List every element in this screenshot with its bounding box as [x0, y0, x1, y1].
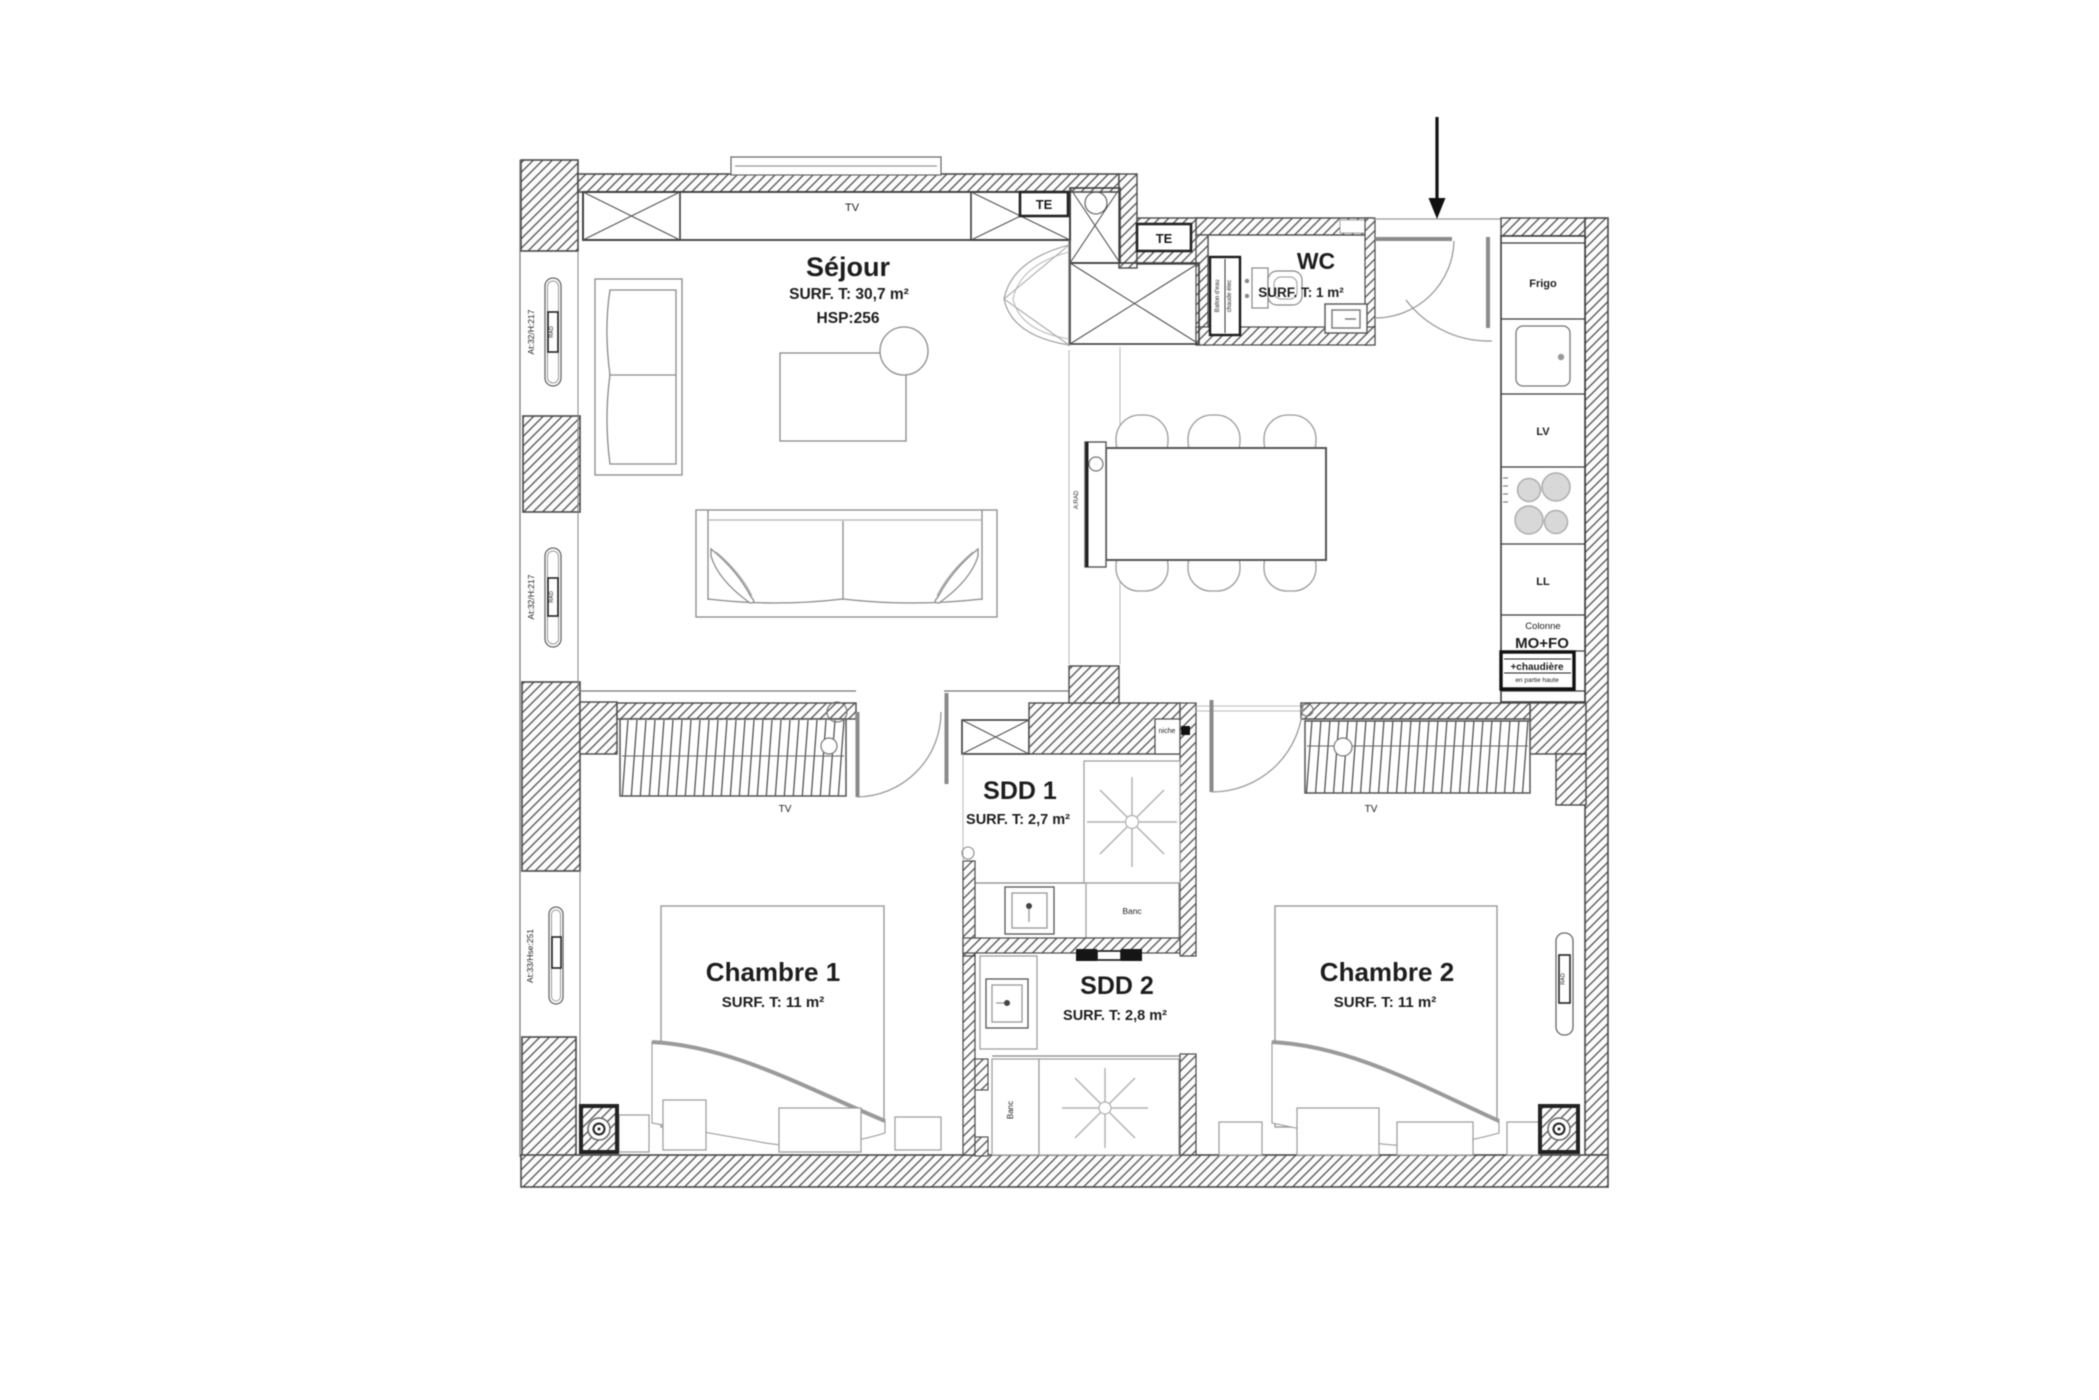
svg-text:+chaudière: +chaudière [1510, 662, 1564, 673]
svg-text:Chambre 1: Chambre 1 [706, 957, 840, 987]
svg-text:RAD: RAD [549, 326, 555, 338]
svg-text:TE: TE [1156, 231, 1173, 246]
svg-text:TE: TE [1036, 197, 1053, 212]
svg-text:MO+FO: MO+FO [1515, 635, 1569, 652]
svg-text:LV: LV [1536, 426, 1550, 438]
svg-text:At:33/Hse:251: At:33/Hse:251 [525, 929, 535, 983]
svg-text:Séjour: Séjour [806, 252, 891, 282]
svg-text:SURF. T: 1 m²: SURF. T: 1 m² [1258, 285, 1344, 300]
svg-text:HSP:256: HSP:256 [817, 310, 880, 327]
svg-text:Banc: Banc [1006, 1101, 1015, 1119]
svg-text:LL: LL [1536, 576, 1550, 588]
svg-text:At:32/H:217: At:32/H:217 [526, 574, 536, 619]
svg-text:Ballon d'eau: Ballon d'eau [1215, 280, 1221, 313]
svg-text:SDD 1: SDD 1 [983, 777, 1057, 805]
svg-text:SURF. T: 11 m²: SURF. T: 11 m² [1334, 994, 1437, 1011]
svg-text:SURF. T: 11 m²: SURF. T: 11 m² [722, 994, 825, 1011]
svg-text:chaude élec: chaude élec [1227, 280, 1233, 312]
svg-text:SURF. T: 2,7 m²: SURF. T: 2,7 m² [966, 812, 1070, 828]
svg-text:en partie haute: en partie haute [1515, 677, 1559, 684]
svg-text:TV: TV [779, 804, 792, 815]
svg-text:At:32/H:217: At:32/H:217 [526, 309, 536, 354]
svg-text:TV: TV [845, 202, 860, 214]
svg-text:Colonne: Colonne [1525, 621, 1560, 632]
svg-text:Frigo: Frigo [1529, 278, 1557, 290]
svg-text:TV: TV [1365, 804, 1378, 815]
svg-text:SDD 2: SDD 2 [1080, 972, 1154, 1000]
svg-text:RAD: RAD [1561, 973, 1567, 985]
svg-text:SURF. T: 30,7 m²: SURF. T: 30,7 m² [789, 286, 909, 303]
svg-text:Chambre 2: Chambre 2 [1320, 957, 1454, 987]
svg-text:RAD: RAD [549, 591, 555, 603]
svg-text:niche: niche [1159, 728, 1176, 735]
svg-text:SURF. T: 2,8 m²: SURF. T: 2,8 m² [1063, 1008, 1167, 1024]
svg-text:Banc: Banc [1122, 906, 1142, 916]
svg-text:WC: WC [1297, 248, 1335, 274]
svg-text:A:RAD: A:RAD [1074, 490, 1080, 509]
